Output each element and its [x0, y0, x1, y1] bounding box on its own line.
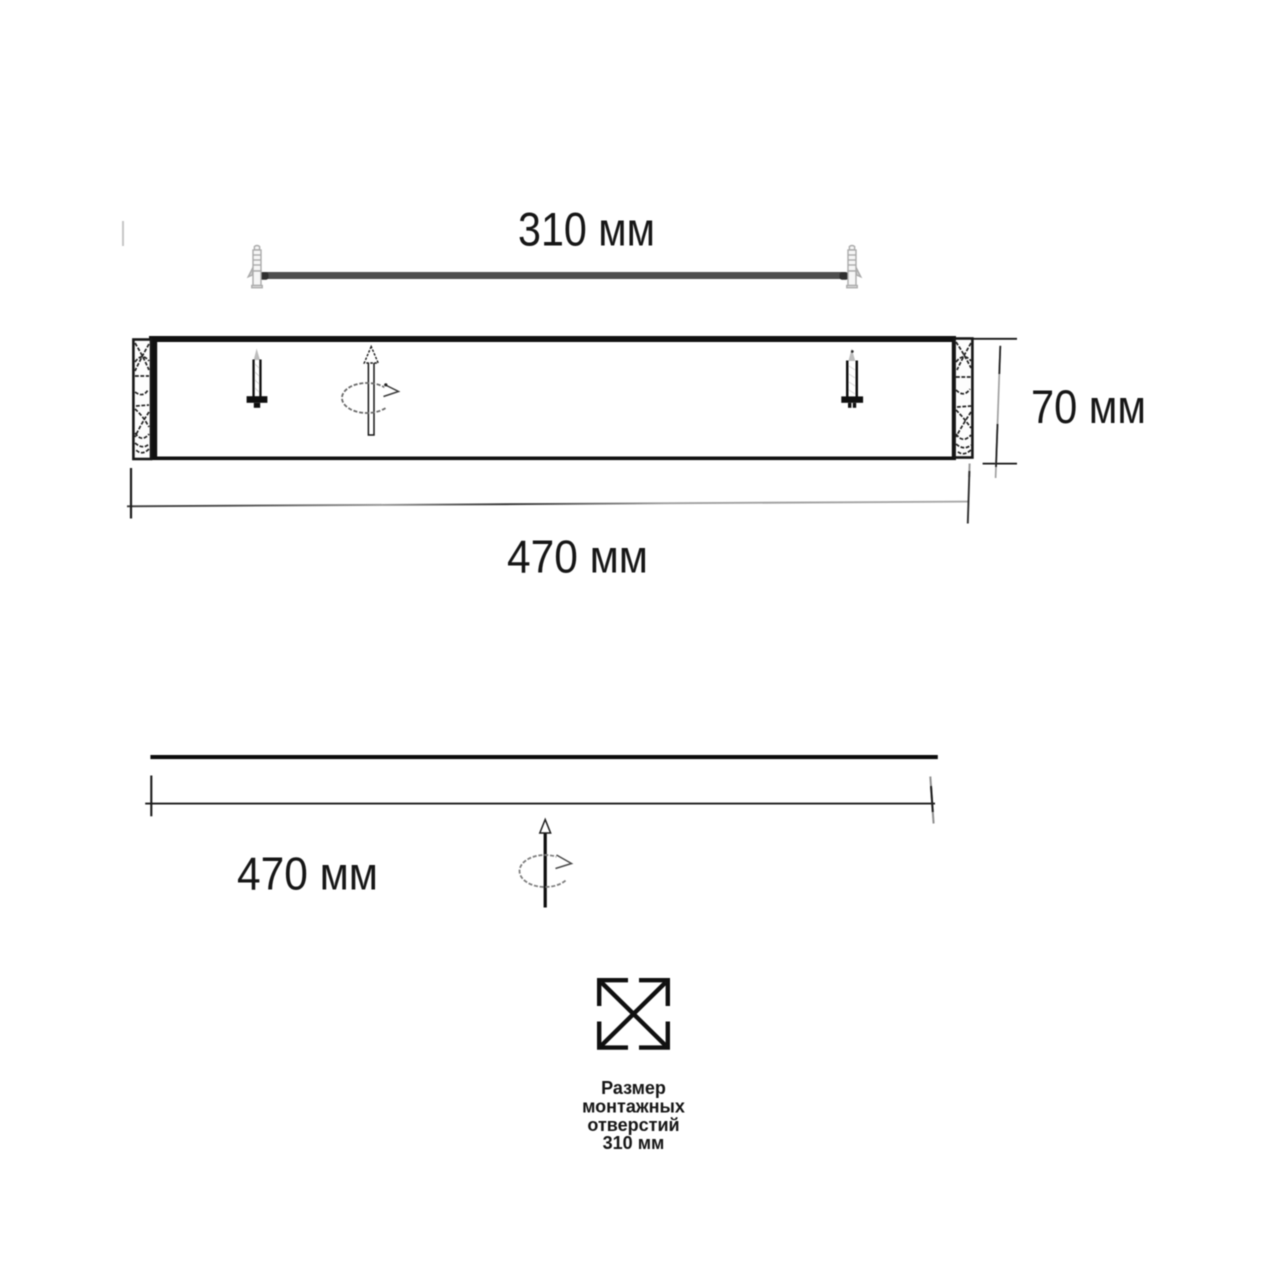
svg-text:70 мм: 70 мм	[1031, 380, 1146, 433]
svg-text:Размер: Размер	[601, 1078, 666, 1098]
svg-text:470 мм: 470 мм	[507, 531, 648, 583]
svg-text:отверстий: отверстий	[587, 1115, 679, 1135]
svg-text:310 мм: 310 мм	[603, 1133, 665, 1153]
svg-text:470 мм: 470 мм	[237, 848, 378, 900]
svg-text:310 мм: 310 мм	[518, 203, 655, 256]
svg-text:монтажных: монтажных	[582, 1096, 685, 1116]
